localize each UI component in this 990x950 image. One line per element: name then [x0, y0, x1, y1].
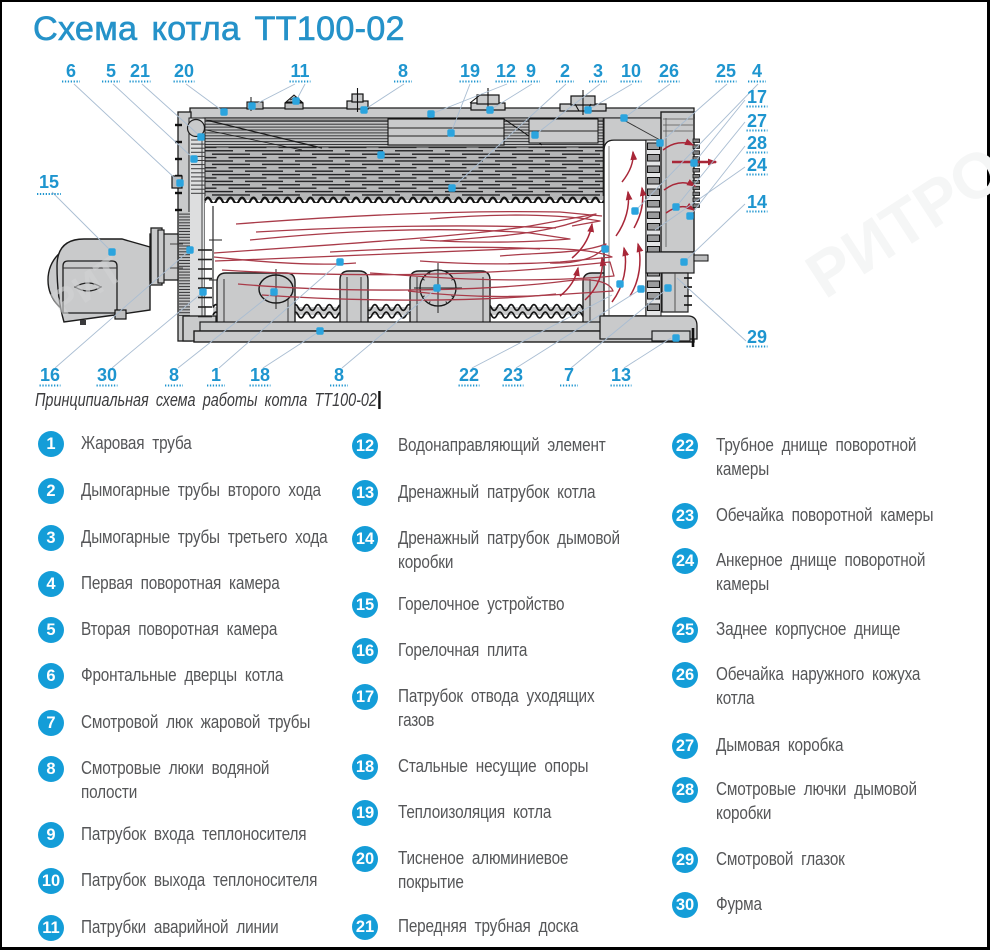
svg-text:30: 30 — [97, 365, 117, 385]
svg-text:22: 22 — [459, 365, 479, 385]
svg-text:5: 5 — [106, 61, 116, 81]
svg-text:28: 28 — [747, 133, 767, 153]
svg-text:16: 16 — [40, 365, 60, 385]
svg-text:8: 8 — [169, 365, 179, 385]
svg-text:29: 29 — [747, 327, 767, 347]
svg-text:25: 25 — [716, 61, 736, 81]
svg-text:20: 20 — [174, 61, 194, 81]
svg-text:РИТРО: РИТРО — [793, 132, 990, 312]
svg-text:10: 10 — [621, 61, 641, 81]
svg-text:15: 15 — [39, 172, 59, 192]
svg-text:8: 8 — [334, 365, 344, 385]
svg-text:3: 3 — [593, 61, 603, 81]
svg-text:2: 2 — [560, 61, 570, 81]
svg-text:7: 7 — [564, 365, 574, 385]
svg-text:11: 11 — [290, 61, 309, 81]
svg-text:24: 24 — [747, 155, 767, 175]
svg-text:13: 13 — [611, 365, 631, 385]
svg-text:21: 21 — [130, 61, 150, 81]
svg-text:27: 27 — [747, 111, 767, 131]
svg-text:1: 1 — [211, 365, 221, 385]
svg-text:4: 4 — [752, 61, 762, 81]
svg-text:23: 23 — [503, 365, 523, 385]
svg-text:17: 17 — [747, 87, 767, 107]
svg-text:14: 14 — [747, 192, 767, 212]
svg-text:26: 26 — [659, 61, 679, 81]
svg-text:8: 8 — [398, 61, 408, 81]
svg-text:12: 12 — [496, 61, 516, 81]
svg-text:19: 19 — [460, 61, 480, 81]
svg-text:18: 18 — [250, 365, 270, 385]
svg-text:6: 6 — [66, 61, 76, 81]
svg-text:9: 9 — [526, 61, 536, 81]
